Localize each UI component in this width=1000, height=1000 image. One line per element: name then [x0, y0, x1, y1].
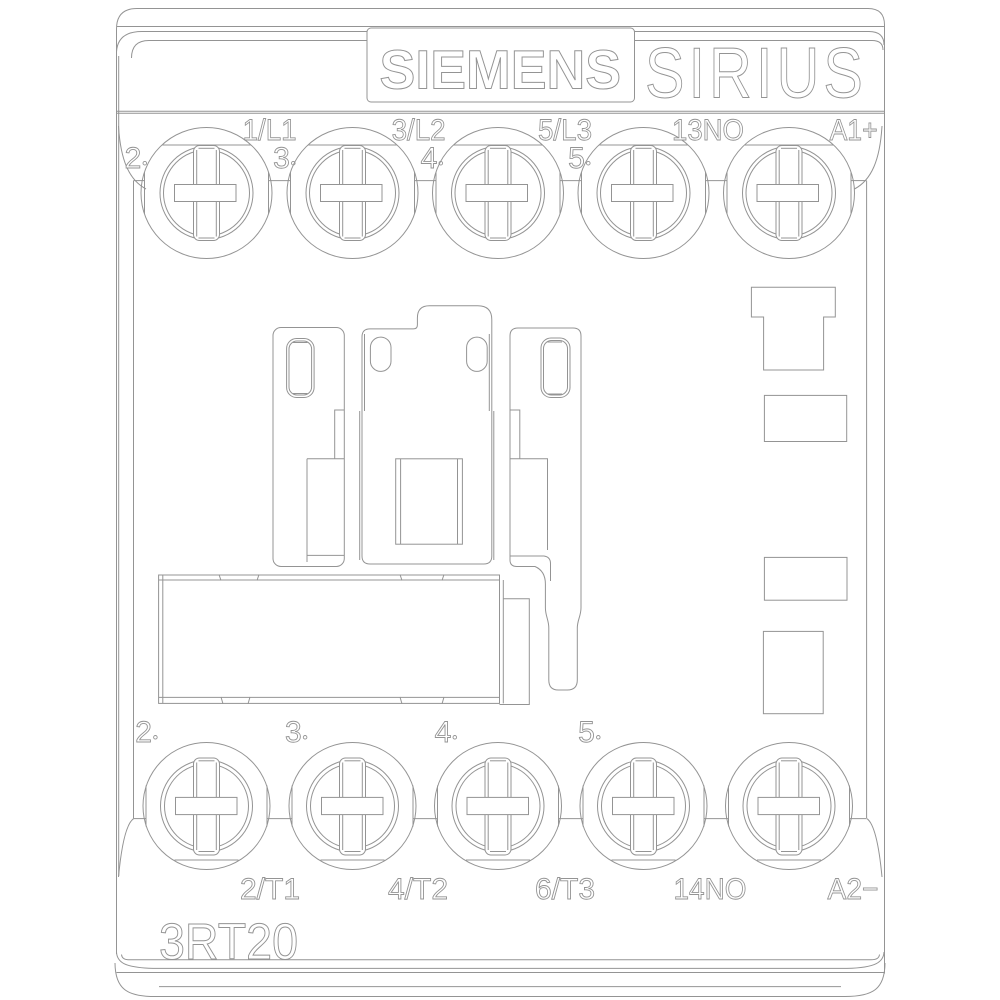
svg-text:3RT20: 3RT20 [159, 913, 298, 970]
svg-text:5: 5 [568, 142, 585, 175]
svg-text:3: 3 [285, 716, 302, 749]
svg-text:4: 4 [421, 142, 438, 175]
svg-text:4/T2: 4/T2 [388, 873, 448, 906]
svg-text:2: 2 [125, 142, 142, 175]
svg-text:A1+: A1+ [830, 114, 878, 147]
svg-text:6/T3: 6/T3 [535, 873, 595, 906]
svg-text:14NO: 14NO [674, 873, 747, 906]
svg-text:13NO: 13NO [672, 114, 744, 147]
svg-text:5: 5 [578, 716, 595, 749]
svg-text:4: 4 [435, 716, 452, 749]
svg-text:SIEMENS: SIEMENS [380, 39, 622, 101]
svg-text:3/L2: 3/L2 [392, 114, 446, 147]
svg-text:SIRIUS: SIRIUS [645, 35, 867, 114]
svg-text:2: 2 [135, 716, 152, 749]
svg-text:A2−: A2− [828, 873, 879, 906]
svg-text:2/T1: 2/T1 [240, 873, 300, 906]
svg-text:3: 3 [273, 142, 290, 175]
